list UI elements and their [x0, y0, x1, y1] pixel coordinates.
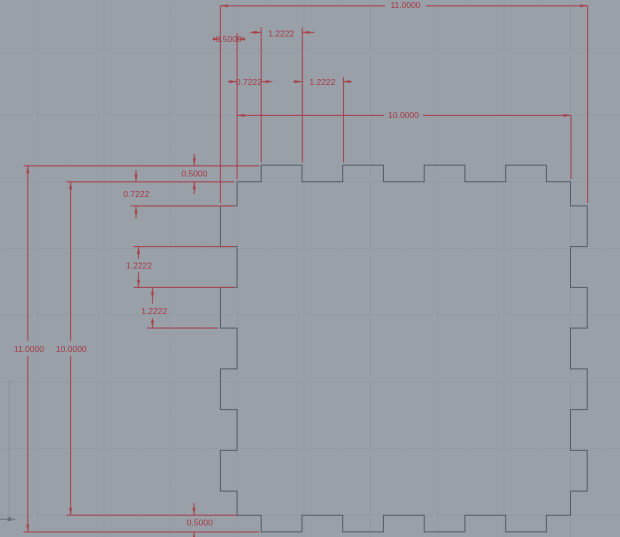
svg-text:1.2222: 1.2222	[141, 306, 167, 316]
svg-text:0.5000: 0.5000	[181, 168, 207, 178]
svg-text:11.0000: 11.0000	[14, 344, 44, 354]
svg-text:0.5000: 0.5000	[216, 34, 242, 44]
svg-text:0.7222: 0.7222	[236, 77, 262, 87]
svg-text:10.0000: 10.0000	[388, 110, 419, 120]
svg-text:0.5000: 0.5000	[187, 517, 213, 527]
svg-text:1.2222: 1.2222	[126, 260, 152, 270]
svg-text:10.0000: 10.0000	[56, 344, 87, 354]
svg-text:0.7222: 0.7222	[123, 189, 149, 199]
svg-text:1.2222: 1.2222	[309, 77, 335, 87]
svg-text:1.2222: 1.2222	[268, 28, 294, 38]
svg-text:11.0000: 11.0000	[390, 0, 420, 10]
